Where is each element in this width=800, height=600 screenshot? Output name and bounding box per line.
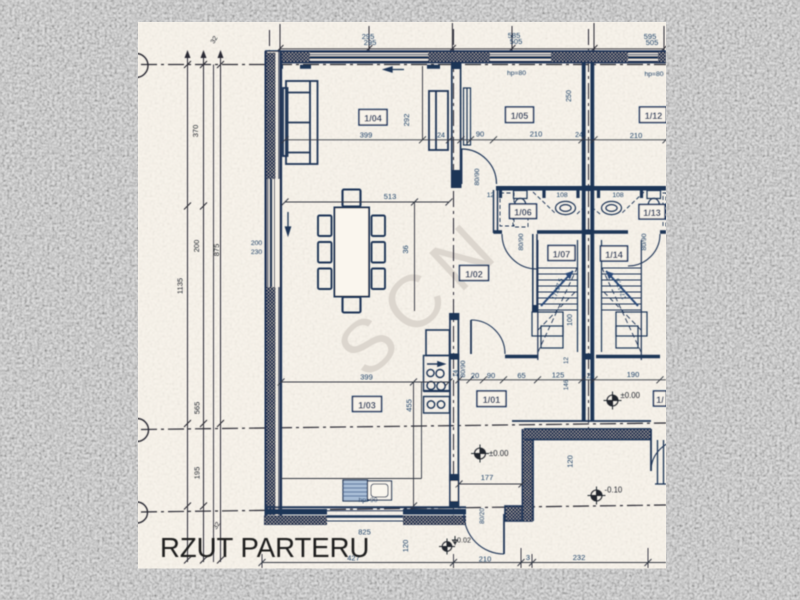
svg-text:±0.00: ±0.00 bbox=[621, 391, 641, 400]
svg-text:1/02: 1/02 bbox=[465, 270, 483, 280]
svg-text:14: 14 bbox=[453, 370, 460, 378]
svg-text:hp=90: hp=90 bbox=[358, 497, 377, 504]
svg-text:24: 24 bbox=[437, 133, 445, 140]
svg-text:1135: 1135 bbox=[176, 278, 185, 294]
svg-text:875: 875 bbox=[212, 244, 221, 257]
svg-text:210: 210 bbox=[530, 130, 543, 139]
svg-text:1/13: 1/13 bbox=[643, 208, 661, 218]
svg-text:1/14: 1/14 bbox=[605, 250, 623, 260]
svg-text:12: 12 bbox=[487, 192, 495, 199]
svg-text:195: 195 bbox=[193, 467, 202, 480]
svg-text:108: 108 bbox=[612, 192, 624, 199]
svg-text:80/90: 80/90 bbox=[518, 233, 525, 250]
svg-text:399: 399 bbox=[360, 131, 373, 140]
svg-text:292: 292 bbox=[402, 114, 411, 127]
svg-text:1/05: 1/05 bbox=[511, 111, 529, 121]
svg-text:90: 90 bbox=[476, 130, 484, 139]
svg-text:513: 513 bbox=[384, 192, 397, 201]
svg-text:250: 250 bbox=[566, 90, 573, 102]
svg-text:1/03: 1/03 bbox=[358, 401, 376, 411]
svg-text:565: 565 bbox=[193, 402, 202, 415]
svg-text:190: 190 bbox=[627, 370, 640, 379]
svg-text:455: 455 bbox=[405, 399, 414, 412]
svg-text:20: 20 bbox=[471, 371, 479, 380]
svg-text:24: 24 bbox=[575, 132, 583, 139]
svg-text:80/20: 80/20 bbox=[479, 508, 486, 524]
svg-text:177: 177 bbox=[481, 473, 494, 482]
svg-text:505: 505 bbox=[510, 37, 523, 46]
svg-text:1/07: 1/07 bbox=[553, 250, 571, 260]
svg-text:200: 200 bbox=[192, 240, 201, 253]
svg-text:1/: 1/ bbox=[656, 395, 664, 405]
svg-text:0.02: 0.02 bbox=[457, 536, 471, 545]
svg-text:-0.10: -0.10 bbox=[605, 486, 623, 495]
svg-text:1/06: 1/06 bbox=[514, 208, 532, 218]
svg-text:210: 210 bbox=[630, 131, 643, 140]
svg-text:65: 65 bbox=[517, 371, 525, 380]
svg-text:120: 120 bbox=[401, 540, 410, 553]
svg-text:146: 146 bbox=[563, 379, 570, 390]
svg-text:80/90: 80/90 bbox=[460, 360, 467, 377]
svg-text:505: 505 bbox=[646, 38, 659, 47]
svg-text:24: 24 bbox=[587, 373, 595, 380]
svg-text:1/01: 1/01 bbox=[483, 395, 501, 405]
svg-text:295: 295 bbox=[364, 38, 377, 47]
svg-text:1/12: 1/12 bbox=[645, 111, 663, 121]
svg-text:36: 36 bbox=[401, 245, 410, 253]
svg-text:hp=80: hp=80 bbox=[507, 70, 526, 77]
svg-text:370: 370 bbox=[191, 125, 200, 138]
svg-text:108: 108 bbox=[556, 192, 568, 199]
svg-text:90: 90 bbox=[487, 371, 495, 380]
svg-text:399: 399 bbox=[360, 373, 373, 382]
svg-text:100: 100 bbox=[567, 314, 574, 326]
svg-text:12: 12 bbox=[563, 357, 570, 365]
svg-text:hp=80: hp=80 bbox=[644, 71, 663, 78]
svg-text:200: 200 bbox=[251, 240, 263, 247]
svg-text:230: 230 bbox=[251, 249, 263, 256]
svg-text:80/90: 80/90 bbox=[474, 168, 481, 185]
svg-text:80/90: 80/90 bbox=[641, 233, 648, 250]
svg-text:232: 232 bbox=[573, 553, 586, 562]
svg-text:3: 3 bbox=[526, 553, 530, 562]
svg-text:210: 210 bbox=[479, 555, 492, 564]
svg-text:±0.00: ±0.00 bbox=[489, 449, 509, 458]
svg-text:RZUT PARTERU: RZUT PARTERU bbox=[160, 532, 369, 563]
svg-text:120: 120 bbox=[566, 455, 575, 468]
svg-text:1/04: 1/04 bbox=[364, 114, 382, 124]
svg-text:125: 125 bbox=[552, 371, 565, 380]
